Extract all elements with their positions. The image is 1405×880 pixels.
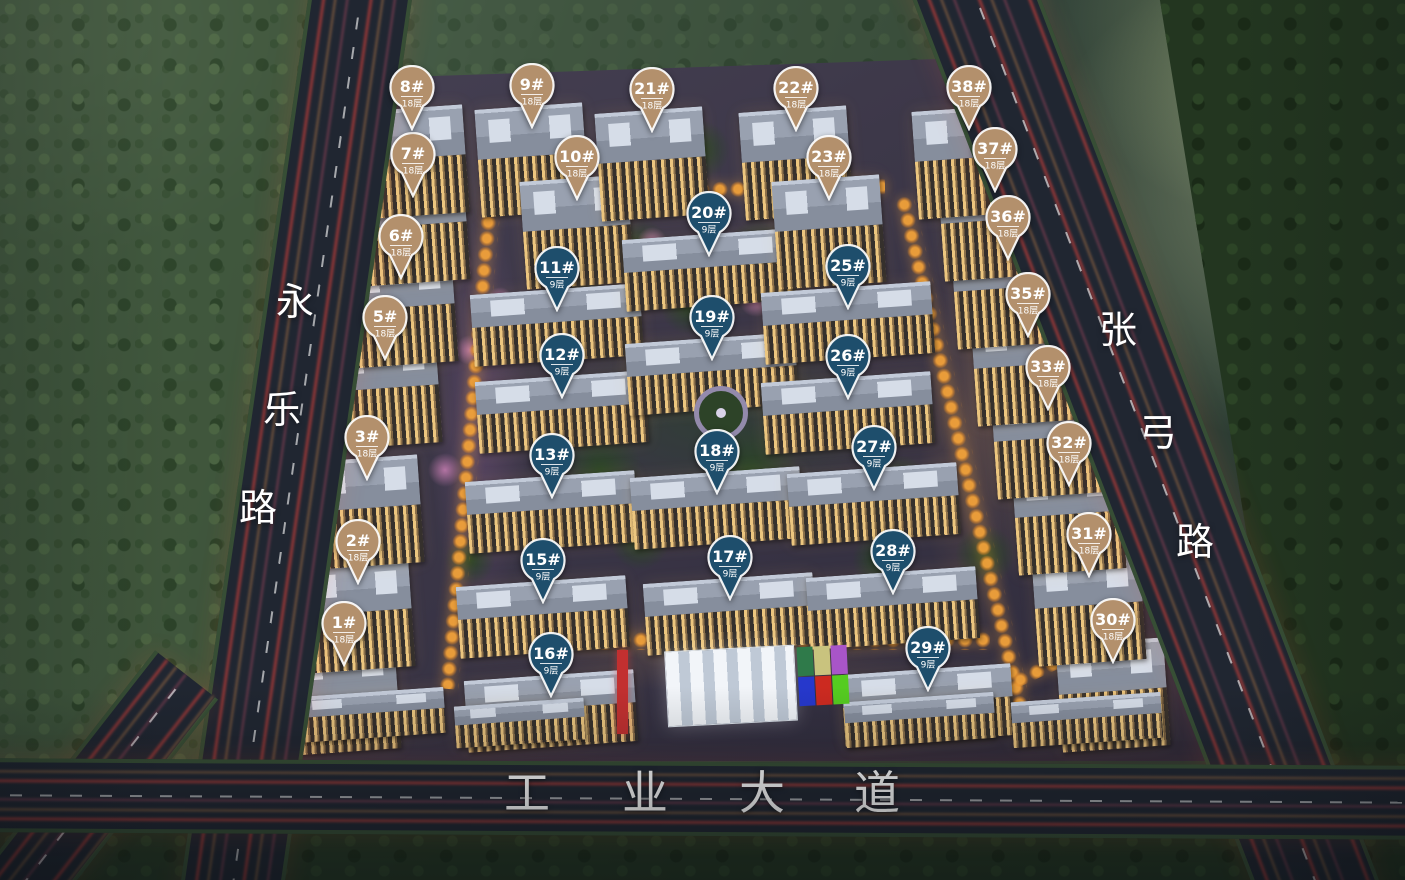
aerial-masterplan: 永乐路张弓路工业大道 1# 18层 2# 18层 3# 18层 5# 18层: [0, 0, 1405, 880]
pin-number: 32#: [1051, 433, 1087, 452]
pin-floors: 18层: [1059, 455, 1079, 466]
pin-teardrop: [853, 426, 896, 489]
pin-shape: 7# 18层: [389, 132, 437, 198]
pin-number: 21#: [634, 79, 670, 98]
pin-37[interactable]: 37# 18层: [971, 127, 1019, 193]
pin-floors: 9层: [544, 666, 559, 677]
pin-teardrop: [808, 136, 851, 199]
pin-floors: 18层: [985, 161, 1005, 172]
pin-shape: 18# 9层: [693, 429, 741, 495]
pin-shape: 22# 18层: [772, 66, 820, 132]
pin-floors: 9层: [867, 459, 882, 470]
pin-teardrop: [1027, 346, 1070, 409]
pin-number: 16#: [533, 644, 569, 663]
pin-8[interactable]: 8# 18层: [388, 65, 436, 131]
pin-28[interactable]: 28# 9层: [869, 529, 917, 595]
pin-floors: 18层: [642, 101, 662, 112]
pin-number: 20#: [691, 203, 727, 222]
pin-number: 26#: [830, 346, 866, 365]
pin-5[interactable]: 5# 18层: [361, 295, 409, 361]
pin-33[interactable]: 33# 18层: [1024, 345, 1072, 411]
pin-11[interactable]: 11# 9层: [533, 246, 581, 312]
pin-number: 13#: [534, 445, 570, 464]
pin-16[interactable]: 16# 9层: [527, 632, 575, 698]
pin-number: 15#: [525, 550, 561, 569]
pin-31[interactable]: 31# 18层: [1065, 512, 1113, 578]
pin-teardrop: [392, 133, 435, 196]
pin-shape: 10# 18层: [553, 135, 601, 201]
pin-number: 1#: [332, 613, 357, 632]
pin-teardrop: [827, 335, 870, 398]
pin-number: 18#: [699, 441, 735, 460]
pin-teardrop: [380, 215, 423, 278]
pin-teardrop: [530, 633, 573, 696]
pin-shape: 37# 18层: [971, 127, 1019, 193]
pin-teardrop: [1092, 599, 1135, 662]
pin-shape: 32# 18层: [1045, 421, 1093, 487]
pin-shape: 16# 9层: [527, 632, 575, 698]
pin-1[interactable]: 1# 18层: [320, 601, 368, 667]
pin-shape: 33# 18层: [1024, 345, 1072, 411]
pin-floors: 18层: [1103, 632, 1123, 643]
pin-number: 29#: [910, 638, 946, 657]
pin-teardrop: [536, 247, 579, 310]
pin-shape: 15# 9层: [519, 538, 567, 604]
pin-number: 12#: [544, 345, 580, 364]
pin-teardrop: [709, 536, 752, 599]
pin-38[interactable]: 38# 18层: [945, 65, 993, 131]
pin-floors: 9层: [710, 463, 725, 474]
pin-27[interactable]: 27# 9层: [850, 425, 898, 491]
pin-number: 2#: [346, 531, 371, 550]
pin-teardrop: [511, 64, 554, 127]
pin-teardrop: [688, 192, 731, 255]
pin-number: 17#: [712, 547, 748, 566]
pin-floors: 9层: [705, 329, 720, 340]
pin-teardrop: [1068, 513, 1111, 576]
pin-teardrop: [541, 334, 584, 397]
pin-15[interactable]: 15# 9层: [519, 538, 567, 604]
pin-number: 3#: [355, 427, 380, 446]
pin-number: 28#: [875, 541, 911, 560]
pin-teardrop: [337, 520, 380, 583]
pin-number: 11#: [539, 258, 575, 277]
pin-teardrop: [391, 66, 434, 129]
pin-26[interactable]: 26# 9层: [824, 334, 872, 400]
pin-teardrop: [872, 530, 915, 593]
pin-teardrop: [827, 245, 870, 308]
pin-17[interactable]: 17# 9层: [706, 535, 754, 601]
pin-12[interactable]: 12# 9层: [538, 333, 586, 399]
pin-floors: 18层: [522, 97, 542, 108]
pin-number: 22#: [778, 78, 814, 97]
building-pins-layer: 1# 18层 2# 18层 3# 18层 5# 18层 6# 18层: [0, 0, 1405, 880]
pin-number: 37#: [977, 139, 1013, 158]
pin-10[interactable]: 10# 18层: [553, 135, 601, 201]
pin-number: 10#: [559, 147, 595, 166]
pin-teardrop: [775, 67, 818, 130]
pin-6[interactable]: 6# 18层: [377, 214, 425, 280]
pin-teardrop: [948, 66, 991, 129]
pin-floors: 18层: [403, 166, 423, 177]
pin-shape: 8# 18层: [388, 65, 436, 131]
pin-floors: 18层: [959, 99, 979, 110]
pin-36[interactable]: 36# 18层: [984, 195, 1032, 261]
pin-floors: 9层: [723, 569, 738, 580]
pin-floors: 9层: [545, 467, 560, 478]
pin-number: 27#: [856, 437, 892, 456]
pin-floors: 18层: [567, 169, 587, 180]
pin-floors: 9层: [841, 368, 856, 379]
pin-19[interactable]: 19# 9层: [688, 295, 736, 361]
pin-29[interactable]: 29# 9层: [904, 626, 952, 692]
pin-shape: 11# 9层: [533, 246, 581, 312]
pin-3[interactable]: 3# 18层: [343, 415, 391, 481]
pin-shape: 29# 9层: [904, 626, 952, 692]
pin-shape: 25# 9层: [824, 244, 872, 310]
pin-floors: 9层: [702, 225, 717, 236]
pin-teardrop: [691, 296, 734, 359]
pin-number: 8#: [400, 77, 425, 96]
pin-9[interactable]: 9# 18层: [508, 63, 556, 129]
pin-floors: 9层: [886, 563, 901, 574]
pin-number: 33#: [1030, 357, 1066, 376]
pin-shape: 35# 18层: [1004, 272, 1052, 338]
pin-teardrop: [1048, 422, 1091, 485]
pin-shape: 3# 18层: [343, 415, 391, 481]
pin-floors: 18层: [402, 99, 422, 110]
pin-shape: 13# 9层: [528, 433, 576, 499]
pin-shape: 31# 18层: [1065, 512, 1113, 578]
pin-shape: 5# 18层: [361, 295, 409, 361]
pin-floors: 18层: [1018, 306, 1038, 317]
pin-teardrop: [323, 602, 366, 665]
pin-32[interactable]: 32# 18层: [1045, 421, 1093, 487]
pin-22[interactable]: 22# 18层: [772, 66, 820, 132]
pin-shape: 9# 18层: [508, 63, 556, 129]
pin-2[interactable]: 2# 18层: [334, 519, 382, 585]
pin-number: 36#: [990, 207, 1026, 226]
pin-teardrop: [346, 416, 389, 479]
pin-number: 31#: [1071, 524, 1107, 543]
pin-shape: 30# 18层: [1089, 598, 1137, 664]
pin-floors: 18层: [786, 100, 806, 111]
pin-7[interactable]: 7# 18层: [389, 132, 437, 198]
pin-number: 35#: [1010, 284, 1046, 303]
pin-18[interactable]: 18# 9层: [693, 429, 741, 495]
pin-teardrop: [987, 196, 1030, 259]
pin-number: 38#: [951, 77, 987, 96]
pin-shape: 21# 18层: [628, 67, 676, 133]
pin-number: 19#: [694, 307, 730, 326]
pin-floors: 18层: [1079, 546, 1099, 557]
pin-floors: 18层: [819, 169, 839, 180]
pin-floors: 9层: [536, 572, 551, 583]
pin-20[interactable]: 20# 9层: [685, 191, 733, 257]
pin-floors: 18层: [334, 635, 354, 646]
pin-teardrop: [907, 627, 950, 690]
pin-number: 30#: [1095, 610, 1131, 629]
pin-shape: 1# 18层: [320, 601, 368, 667]
pin-shape: 26# 9层: [824, 334, 872, 400]
pin-13[interactable]: 13# 9层: [528, 433, 576, 499]
pin-25[interactable]: 25# 9层: [824, 244, 872, 310]
pin-number: 5#: [373, 307, 398, 326]
pin-shape: 27# 9层: [850, 425, 898, 491]
pin-shape: 36# 18层: [984, 195, 1032, 261]
pin-35[interactable]: 35# 18层: [1004, 272, 1052, 338]
pin-floors: 18层: [998, 229, 1018, 240]
pin-teardrop: [522, 539, 565, 602]
pin-number: 6#: [389, 226, 414, 245]
pin-floors: 18层: [375, 329, 395, 340]
pin-teardrop: [556, 136, 599, 199]
pin-shape: 20# 9层: [685, 191, 733, 257]
pin-shape: 12# 9层: [538, 333, 586, 399]
pin-floors: 9层: [841, 278, 856, 289]
pin-teardrop: [696, 430, 739, 493]
pin-shape: 38# 18层: [945, 65, 993, 131]
pin-shape: 2# 18层: [334, 519, 382, 585]
pin-floors: 9层: [921, 660, 936, 671]
pin-shape: 19# 9层: [688, 295, 736, 361]
pin-floors: 9层: [555, 367, 570, 378]
pin-teardrop: [631, 68, 674, 131]
pin-shape: 28# 9层: [869, 529, 917, 595]
pin-shape: 6# 18层: [377, 214, 425, 280]
pin-teardrop: [364, 296, 407, 359]
pin-teardrop: [1007, 273, 1050, 336]
pin-floors: 18层: [357, 449, 377, 460]
pin-number: 7#: [401, 144, 426, 163]
pin-floors: 9层: [550, 280, 565, 291]
pin-number: 25#: [830, 256, 866, 275]
pin-number: 9#: [520, 75, 545, 94]
pin-floors: 18层: [391, 248, 411, 259]
pin-21[interactable]: 21# 18层: [628, 67, 676, 133]
pin-number: 23#: [811, 147, 847, 166]
pin-teardrop: [974, 128, 1017, 191]
pin-shape: 17# 9层: [706, 535, 754, 601]
pin-shape: 23# 18层: [805, 135, 853, 201]
pin-30[interactable]: 30# 18层: [1089, 598, 1137, 664]
pin-23[interactable]: 23# 18层: [805, 135, 853, 201]
pin-floors: 18层: [1038, 379, 1058, 390]
pin-floors: 18层: [348, 553, 368, 564]
pin-teardrop: [531, 434, 574, 497]
